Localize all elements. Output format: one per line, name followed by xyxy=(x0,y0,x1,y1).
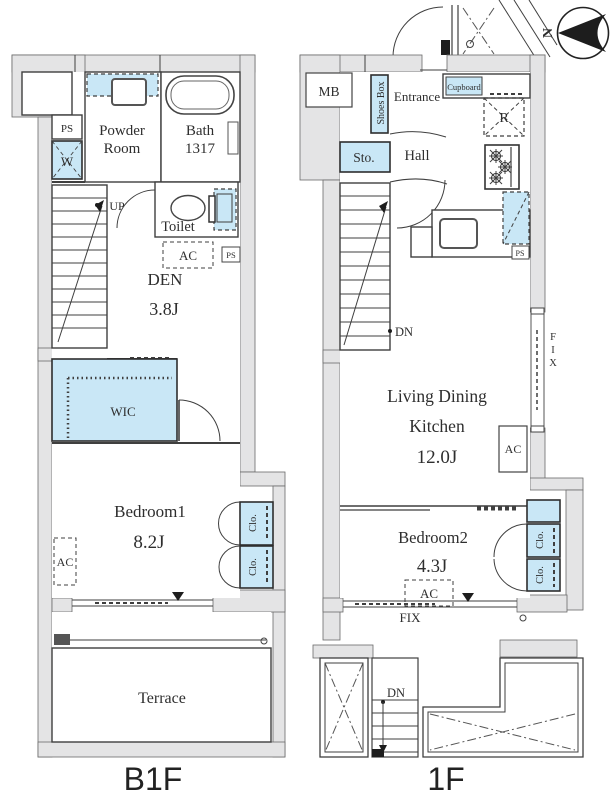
f1-floor-label: 1F xyxy=(427,761,464,797)
den-label: DEN xyxy=(148,270,183,289)
f1-fix-window-right: FIX xyxy=(531,308,557,432)
ac-den-label: AC xyxy=(179,248,197,263)
burner-icon xyxy=(498,160,512,174)
b1f-lightwell xyxy=(22,72,72,115)
cupboard-label: Cupboard xyxy=(447,82,481,92)
powder-room: Powder Room xyxy=(85,72,161,182)
powder-room-label: Powder xyxy=(99,123,145,139)
burner-icon xyxy=(489,149,503,163)
dry-area xyxy=(52,612,271,648)
gas-stove xyxy=(485,145,519,189)
toilet-bowl xyxy=(171,196,205,221)
kitchen-cupboard: Cupboard xyxy=(443,74,530,98)
powder-room-label2: Room xyxy=(104,141,141,157)
terrace-label: Terrace xyxy=(138,690,186,707)
void-right xyxy=(423,658,583,757)
ac-ldk-label: AC xyxy=(505,442,522,456)
dn-stairs-label: DN xyxy=(395,325,413,339)
vanity-sink xyxy=(112,79,146,105)
bath-size-label: 1317 xyxy=(185,141,216,157)
pipe-space-label: PS xyxy=(61,123,73,135)
shoes-box-label: Shoes Box xyxy=(376,81,387,124)
fix-right-label: FIX xyxy=(549,332,557,369)
outdoor-stairs: DN xyxy=(372,658,418,757)
ac-bedroom1-label: AC xyxy=(57,555,74,569)
kitchen-sink xyxy=(440,219,477,248)
fridge-label: R xyxy=(499,111,509,126)
bath-niche xyxy=(228,122,238,154)
north-label: N xyxy=(541,28,556,38)
entrance-door-arc xyxy=(393,7,443,57)
entrance-label: Entrance xyxy=(394,89,440,104)
floorplan-page: Powder Room Bath 1317 PS W xyxy=(0,0,613,800)
washer-box: W xyxy=(52,141,82,179)
ldk-label-2: Kitchen xyxy=(409,416,465,436)
ac-bedroom2-label: AC xyxy=(420,586,438,601)
washer-label: W xyxy=(61,154,74,169)
f1-plan: N MB Shoes Box Entrance xyxy=(300,0,609,797)
f1-outdoor: DN xyxy=(320,658,583,757)
drain-grate xyxy=(54,634,70,645)
closet2-1f-label: Clo. xyxy=(535,566,546,584)
ps-mid-label: PS xyxy=(226,250,236,260)
toilet-shelf xyxy=(217,194,232,222)
void-left xyxy=(320,658,368,757)
hall-label: Hall xyxy=(405,148,430,164)
bedroom1-size-label: 8.2J xyxy=(133,532,164,553)
compass: N xyxy=(541,8,609,59)
burner-icon xyxy=(489,171,503,185)
ldk-size-label: 12.0J xyxy=(417,447,458,468)
floorplan-svg: Powder Room Bath 1317 PS W xyxy=(0,0,613,800)
f1-fix-label: FIX xyxy=(400,610,422,625)
wic-label: WIC xyxy=(110,404,135,419)
mb-label: MB xyxy=(318,84,339,99)
upper-cabinet xyxy=(527,500,560,522)
up-label: UP xyxy=(109,199,125,213)
entrance-approach xyxy=(393,0,557,57)
closet2-label: Clo. xyxy=(248,558,259,576)
toilet-tank xyxy=(209,196,215,222)
closet1-label: Clo. xyxy=(248,514,259,532)
bedroom1-label: Bedroom1 xyxy=(114,502,186,521)
toilet-label: Toilet xyxy=(161,219,195,235)
sto-label: Sto. xyxy=(353,150,374,165)
b1f-plan: Powder Room Bath 1317 PS W xyxy=(12,55,285,797)
bath-label: Bath xyxy=(186,123,215,139)
bedroom2-label: Bedroom2 xyxy=(398,528,468,547)
entrance-door-leaf xyxy=(441,40,450,55)
dn-outdoor-label: DN xyxy=(387,686,405,700)
bathtub xyxy=(166,76,234,114)
terrace: Terrace xyxy=(52,648,271,742)
bedroom2-size-label: 4.3J xyxy=(417,557,447,577)
den-size-label: 3.8J xyxy=(149,299,179,319)
porch-drain xyxy=(467,41,474,48)
ldk-label-1: Living Dining xyxy=(387,386,487,406)
closet1-1f-label: Clo. xyxy=(535,531,546,549)
b1f-floor-label: B1F xyxy=(124,761,183,797)
bathroom: Bath 1317 xyxy=(161,72,240,182)
ps-kitchen-label: PS xyxy=(516,249,525,258)
